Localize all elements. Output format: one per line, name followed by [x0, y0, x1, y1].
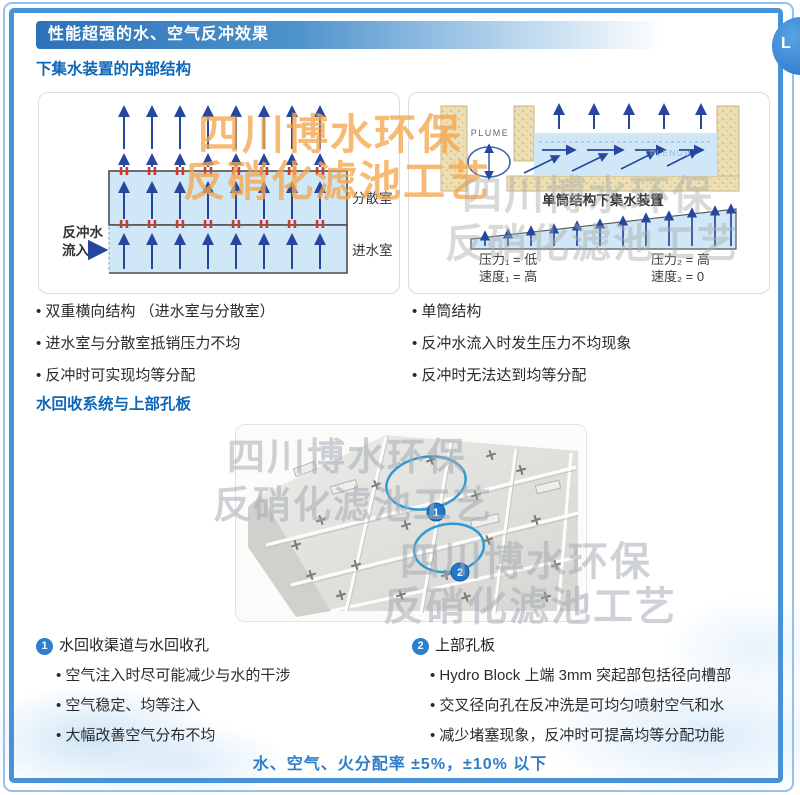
item1-bullet: 空气稳定、均等注入	[56, 694, 200, 715]
section-structure-heading: 下集水装置的内部结构	[36, 57, 191, 79]
item2-number-badge: 2	[412, 638, 429, 655]
plume-wall	[514, 106, 534, 161]
item2-title: 上部孔板	[435, 637, 495, 654]
bullet-item: 反冲时可实现均等分配	[36, 364, 195, 385]
corner-badge-label: L	[781, 35, 791, 53]
inflow-label-line1: 反冲水	[63, 224, 104, 240]
annotation-badge-2-label: 2	[457, 567, 463, 579]
distribution-rate-note: 水、空气、火分配率 ±5%，±10% 以下	[0, 750, 800, 774]
chamber-bottom-label: 进水室	[352, 242, 393, 258]
bullet-item: 单筒结构	[412, 300, 481, 321]
single-structure-panel: PLENUM PLUME 单筒结构下集水装置	[408, 92, 770, 294]
item2-bullet: 交叉径向孔在反冲洗是可均匀喷射空气和水	[430, 694, 724, 715]
floor-slab	[507, 176, 739, 191]
dispersion-chamber	[109, 171, 347, 225]
page-title: 性能超强的水、空气反冲效果	[36, 21, 720, 49]
plume-vortex	[468, 145, 510, 179]
section-recovery-heading: 水回收系统与上部孔板	[36, 392, 191, 414]
pressure-right-label: 压力₂ = 高 速度₂ = 0	[651, 251, 710, 285]
dual-structure-diagram: 分散室 进水室 反冲水 流入	[39, 93, 398, 292]
item1-number-badge: 1	[36, 638, 53, 655]
pressure2: 压力₂ = 高	[651, 251, 710, 268]
bullet-item: 双重横向结构 （进水室与分散室）	[36, 300, 275, 321]
single-diagram-caption: 单筒结构下集水装置	[542, 192, 664, 208]
bullet-item: 反冲时无法达到均等分配	[412, 364, 586, 385]
item1-bullet: 大幅改善空气分布不均	[56, 724, 215, 745]
pressure-left-label: 压力₁ = 低 速度₁ = 高	[479, 251, 537, 285]
velocity2: 速度₂ = 0	[651, 268, 710, 285]
plenum-label: PLENUM	[650, 149, 692, 158]
inlet-chamber	[109, 225, 347, 273]
single-structure-diagram: PLENUM PLUME 单筒结构下集水装置	[409, 93, 768, 292]
item1-bullet: 空气注入时尽可能减少与水的干涉	[56, 664, 290, 685]
item1-title: 水回收渠道与水回收孔	[59, 637, 209, 654]
page: L 性能超强的水、空气反冲效果 下集水装置的内部结构	[0, 0, 800, 795]
chamber-top-label: 分散室	[352, 190, 393, 206]
bullet-item: 进水室与分散室抵销压力不均	[36, 332, 240, 353]
item2-bullet: Hydro Block 上端 3mm 突起部包括径向槽部	[430, 664, 731, 685]
velocity1: 速度₁ = 高	[479, 268, 537, 285]
plume-label: PLUME	[471, 128, 510, 138]
item2-bullet: 减少堵塞现象，反冲时可提高均等分配功能	[430, 724, 724, 745]
bullet-item: 反冲水流入时发生压力不均现象	[412, 332, 631, 353]
pressure1: 压力₁ = 低	[479, 251, 537, 268]
inflow-label-line2: 流入	[62, 242, 89, 258]
item2-title-row: 2上部孔板	[412, 634, 495, 655]
hydro-block-photo: 1 2	[235, 424, 587, 622]
annotation-badge-1-label: 1	[433, 507, 439, 519]
left-wall	[441, 106, 467, 191]
dual-structure-panel: 分散室 进水室 反冲水 流入	[38, 92, 400, 294]
pressure-wedge	[471, 209, 736, 249]
item1-title-row: 1水回收渠道与水回收孔	[36, 634, 209, 655]
